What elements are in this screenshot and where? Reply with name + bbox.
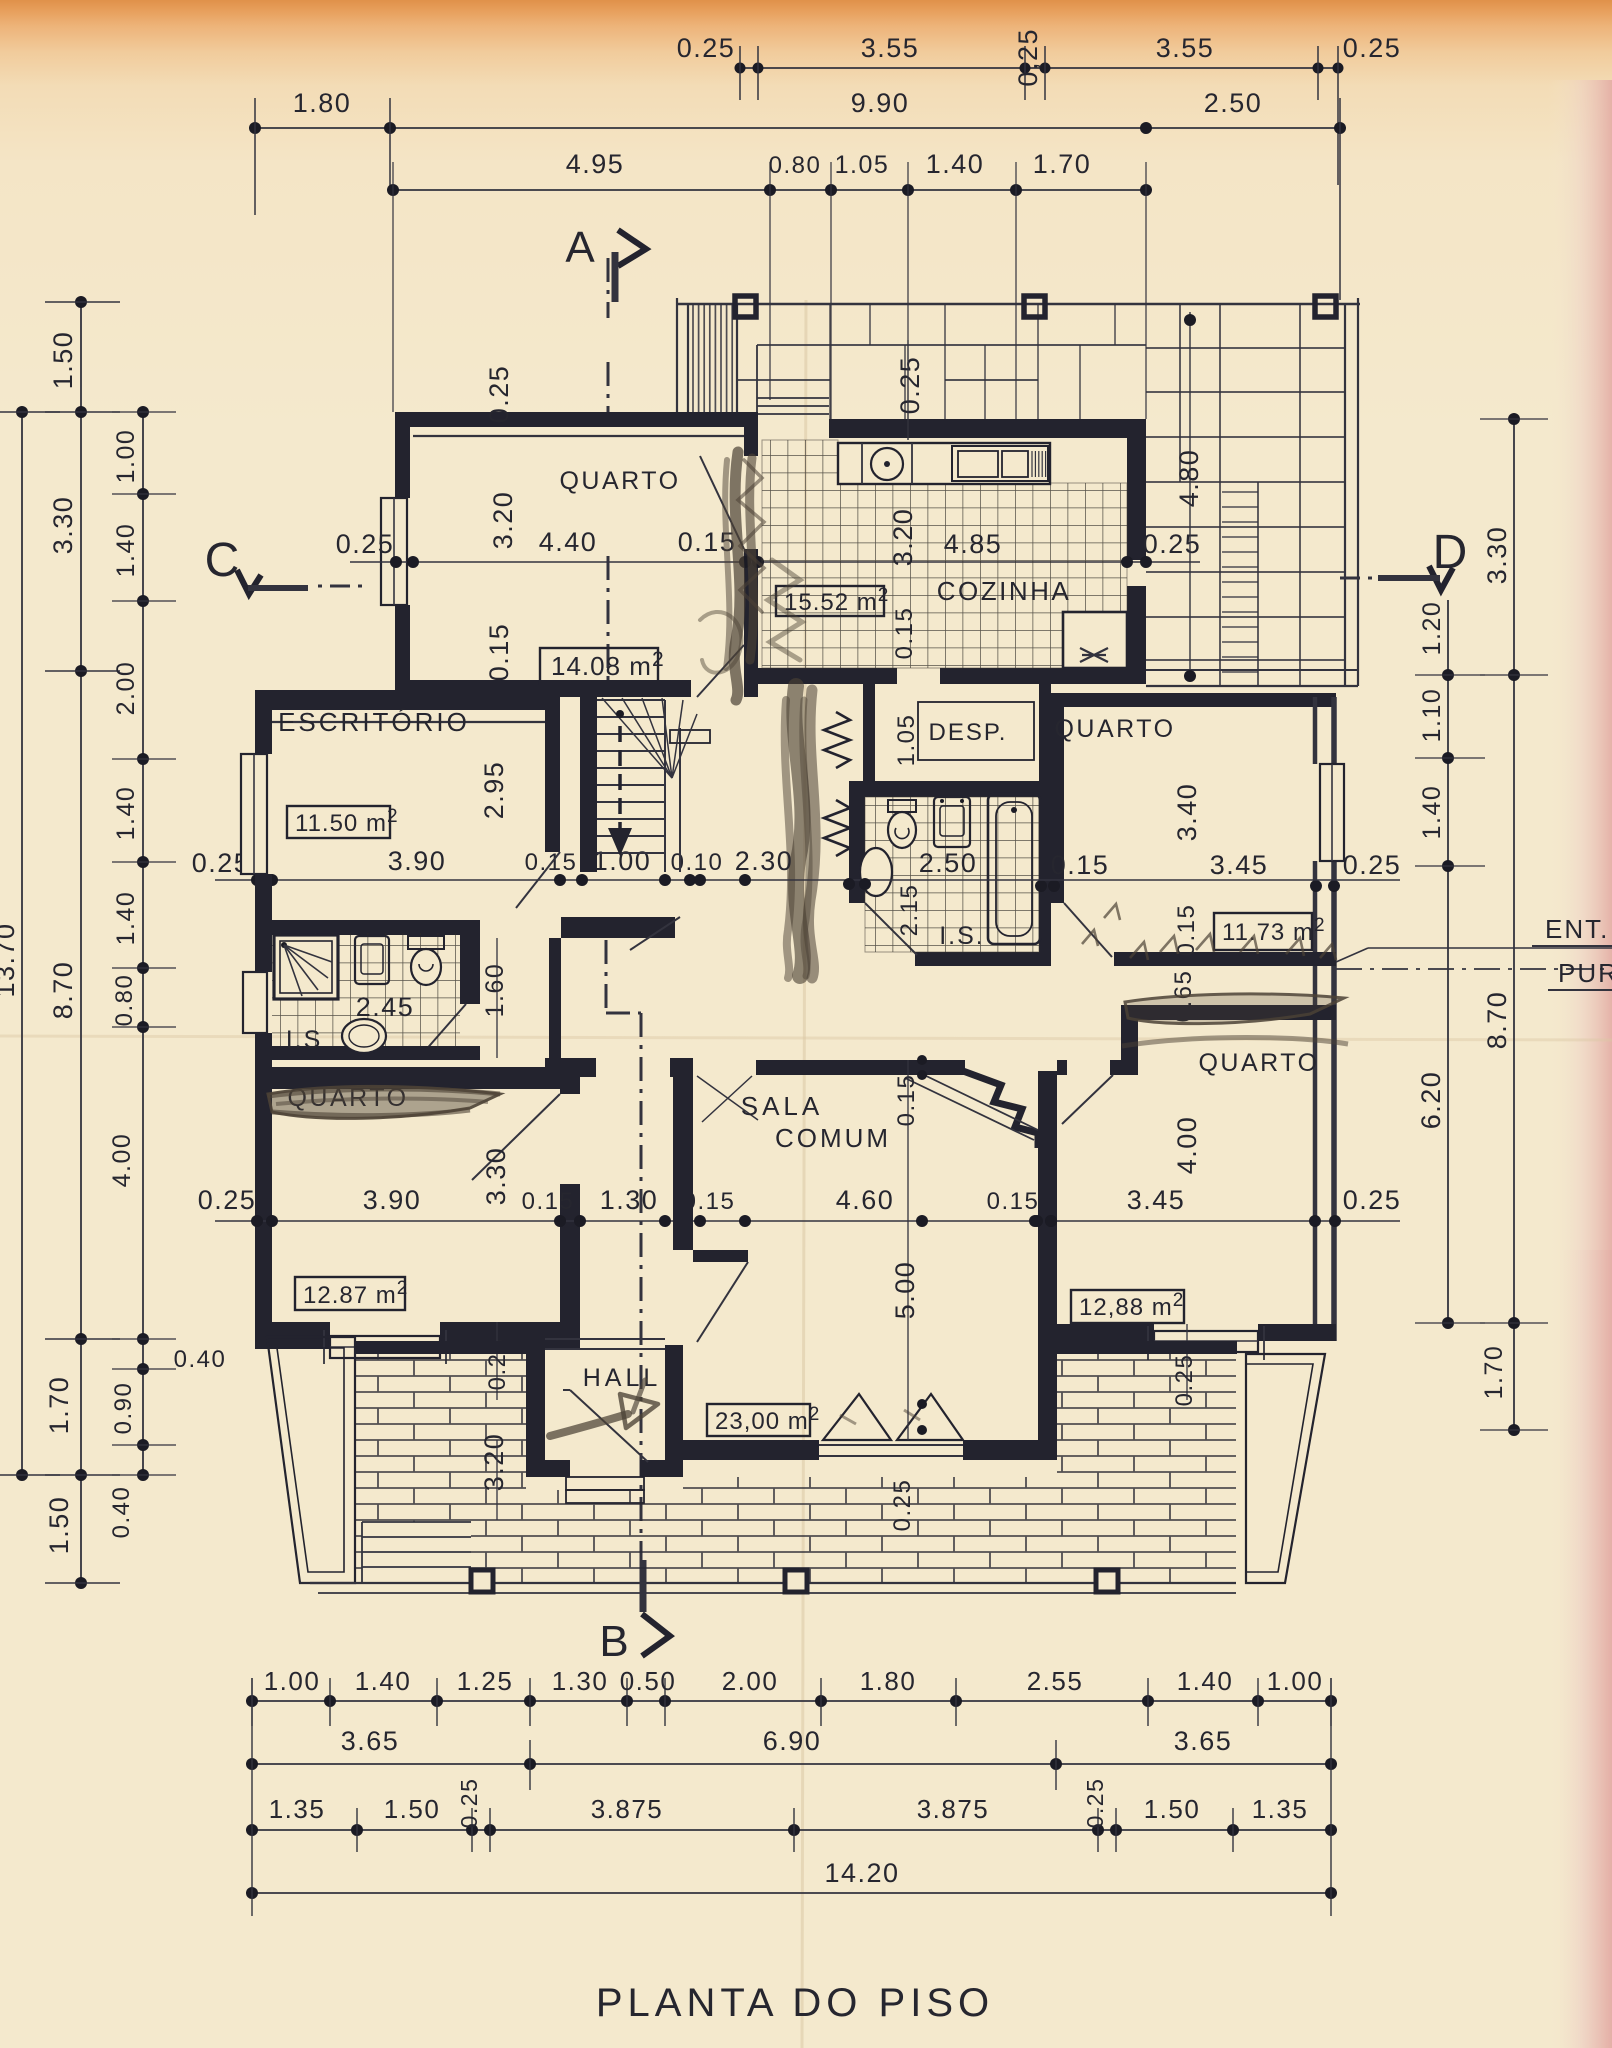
svg-text:3.65: 3.65 (341, 1726, 400, 1756)
svg-text:PLANTA DO PISO: PLANTA DO PISO (596, 1981, 994, 2025)
svg-text:3.20: 3.20 (488, 491, 518, 550)
svg-text:23,00 m2: 23,00 m2 (715, 1404, 820, 1435)
svg-text:1.40: 1.40 (112, 891, 140, 946)
svg-text:1.50: 1.50 (1144, 1794, 1201, 1824)
svg-text:1.20: 1.20 (1418, 601, 1446, 656)
svg-text:1.05: 1.05 (893, 714, 920, 767)
svg-text:2.00: 2.00 (112, 661, 140, 716)
svg-text:11.73 m2: 11.73 m2 (1222, 915, 1326, 946)
svg-text:3.30: 3.30 (48, 496, 78, 555)
svg-text:0.25: 0.25 (198, 1185, 257, 1215)
svg-text:COMUM: COMUM (775, 1123, 891, 1153)
svg-text:3.65: 3.65 (1174, 1726, 1233, 1756)
svg-text:1.50: 1.50 (384, 1794, 441, 1824)
svg-text:12,88 m2: 12,88 m2 (1079, 1290, 1184, 1321)
svg-text:4.95: 4.95 (566, 149, 625, 179)
svg-text:0.15: 0.15 (1051, 850, 1110, 880)
svg-text:3.45: 3.45 (1210, 850, 1269, 880)
svg-text:0.15: 0.15 (987, 1188, 1040, 1215)
svg-text:0.15: 0.15 (891, 607, 918, 660)
svg-text:B: B (599, 1617, 628, 1666)
svg-text:1.00: 1.00 (112, 429, 140, 484)
svg-text:ENT. A: ENT. A (1545, 914, 1612, 944)
svg-text:1.25: 1.25 (457, 1666, 514, 1696)
svg-text:1.50: 1.50 (48, 331, 78, 390)
svg-text:4.40: 4.40 (539, 527, 598, 557)
svg-text:2.30: 2.30 (735, 846, 794, 876)
svg-text:1.35: 1.35 (1252, 1794, 1309, 1824)
svg-text:1.05: 1.05 (835, 151, 890, 179)
svg-text:8.70: 8.70 (48, 961, 78, 1020)
svg-text:COZINHA: COZINHA (937, 576, 1072, 606)
svg-text:0.10: 0.10 (671, 849, 724, 876)
svg-text:0.80: 0.80 (111, 974, 138, 1027)
svg-text:0.25: 0.25 (456, 1778, 482, 1829)
svg-text:2.95: 2.95 (479, 761, 509, 820)
svg-text:1.40: 1.40 (926, 149, 985, 179)
svg-text:13.70: 13.70 (0, 922, 20, 997)
svg-text:0.25: 0.25 (336, 529, 395, 559)
svg-text:1.10: 1.10 (1418, 688, 1446, 743)
svg-text:1.00: 1.00 (1267, 1666, 1324, 1696)
svg-text:C: C (205, 534, 240, 587)
svg-text:A: A (565, 223, 595, 272)
svg-text:2.55: 2.55 (1027, 1666, 1084, 1696)
svg-text:8.70: 8.70 (1482, 991, 1512, 1050)
svg-text:1.30: 1.30 (552, 1666, 609, 1696)
svg-text:1.40: 1.40 (1418, 785, 1446, 840)
svg-text:0.25: 0.25 (1343, 1185, 1402, 1215)
svg-text:14.08 m2: 14.08 m2 (551, 648, 665, 681)
svg-text:1.50: 1.50 (44, 1496, 74, 1555)
svg-text:1.40: 1.40 (112, 786, 140, 841)
svg-text:4.60: 4.60 (836, 1185, 895, 1215)
svg-text:1.00: 1.00 (264, 1666, 321, 1696)
svg-text:2.45: 2.45 (356, 992, 415, 1022)
svg-text:4.00: 4.00 (108, 1133, 136, 1188)
svg-text:0.15: 0.15 (893, 1074, 920, 1127)
svg-text:6.20: 6.20 (1416, 1071, 1446, 1130)
svg-text:I.S.: I.S. (939, 922, 985, 950)
svg-text:1.35: 1.35 (269, 1794, 326, 1824)
svg-text:4.00: 4.00 (1172, 1116, 1202, 1175)
svg-text:QUARTO: QUARTO (559, 467, 680, 495)
svg-text:0.90: 0.90 (110, 1382, 137, 1435)
svg-text:9.90: 9.90 (851, 88, 910, 118)
svg-text:2.50: 2.50 (919, 848, 978, 878)
svg-text:0,25: 0,25 (1013, 28, 1043, 87)
svg-text:3.40: 3.40 (1172, 783, 1202, 842)
svg-text:HALL: HALL (583, 1364, 662, 1392)
svg-text:15.52 m2: 15.52 m2 (784, 585, 889, 616)
svg-text:SALA: SALA (741, 1091, 824, 1121)
svg-text:3.90: 3.90 (388, 846, 447, 876)
svg-text:1.70: 1.70 (1033, 149, 1092, 179)
svg-text:PURO: PURO (1558, 958, 1612, 988)
svg-text:ESCRITÓRIO: ESCRITÓRIO (278, 707, 470, 737)
svg-text:5.00: 5.00 (890, 1261, 920, 1320)
svg-text:2.15: 2.15 (896, 884, 923, 937)
svg-text:0.25: 0.25 (677, 33, 736, 63)
svg-text:4.80: 4.80 (1174, 449, 1204, 508)
svg-text:3.90: 3.90 (363, 1185, 422, 1215)
svg-text:0.25: 0.25 (1343, 850, 1402, 880)
svg-text:0.80: 0.80 (769, 152, 822, 179)
svg-text:DESP.: DESP. (929, 719, 1008, 746)
svg-text:12.87 m2: 12.87 m2 (303, 1278, 408, 1309)
svg-text:3.30: 3.30 (481, 1147, 511, 1206)
svg-text:3.875: 3.875 (591, 1794, 664, 1824)
svg-text:3.45: 3.45 (1127, 1185, 1186, 1215)
svg-text:11.50 m2: 11.50 m2 (295, 806, 399, 837)
svg-text:1.30: 1.30 (600, 1185, 659, 1215)
svg-text:I.S: I.S (286, 1026, 323, 1054)
svg-text:1.80: 1.80 (860, 1666, 917, 1696)
svg-text:0.40: 0.40 (174, 1346, 227, 1373)
svg-text:0.25: 0.25 (1143, 529, 1202, 559)
svg-text:0.25: 0.25 (895, 356, 925, 415)
svg-text:0.25: 0.25 (1343, 33, 1402, 63)
svg-text:4.85: 4.85 (944, 529, 1003, 559)
svg-text:14.20: 14.20 (824, 1858, 899, 1888)
svg-text:3.20: 3.20 (888, 508, 918, 567)
svg-text:0.40: 0.40 (108, 1486, 135, 1539)
svg-text:3.30: 3.30 (1482, 526, 1512, 585)
svg-text:0.15: 0.15 (522, 1188, 575, 1215)
svg-text:0.15: 0.15 (484, 623, 514, 682)
svg-text:1.80: 1.80 (293, 88, 352, 118)
svg-text:3.55: 3.55 (861, 33, 920, 63)
svg-text:1.40: 1.40 (1177, 1666, 1234, 1696)
svg-text:QUARTO: QUARTO (1054, 715, 1175, 743)
svg-text:0.25: 0.25 (484, 365, 514, 424)
svg-text:QUARTO: QUARTO (1198, 1049, 1319, 1077)
svg-text:1.60: 1.60 (481, 963, 509, 1018)
svg-text:0.50: 0.50 (620, 1666, 677, 1696)
svg-text:2.50: 2.50 (1204, 88, 1263, 118)
svg-text:3.875: 3.875 (917, 1794, 990, 1824)
svg-text:6.90: 6.90 (763, 1726, 822, 1756)
svg-text:1.70: 1.70 (44, 1376, 74, 1435)
svg-text:1.40: 1.40 (355, 1666, 412, 1696)
svg-text:3.55: 3.55 (1156, 33, 1215, 63)
svg-text:1.40: 1.40 (112, 523, 140, 578)
svg-text:3.20: 3.20 (479, 1433, 509, 1492)
svg-text:1.70: 1.70 (1480, 1345, 1508, 1400)
svg-text:2.00: 2.00 (722, 1666, 779, 1696)
svg-text:0.25: 0.25 (1082, 1778, 1108, 1829)
